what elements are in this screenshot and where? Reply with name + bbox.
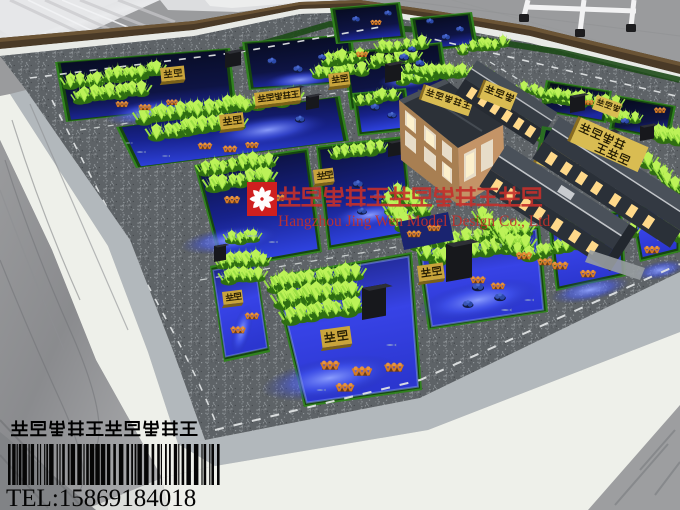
svg-text:TEL:15869184018: TEL:15869184018 [6, 485, 196, 510]
svg-text:Hangzhou Jing Wen Model Design: Hangzhou Jing Wen Model Design Co., Ltd [278, 213, 551, 230]
